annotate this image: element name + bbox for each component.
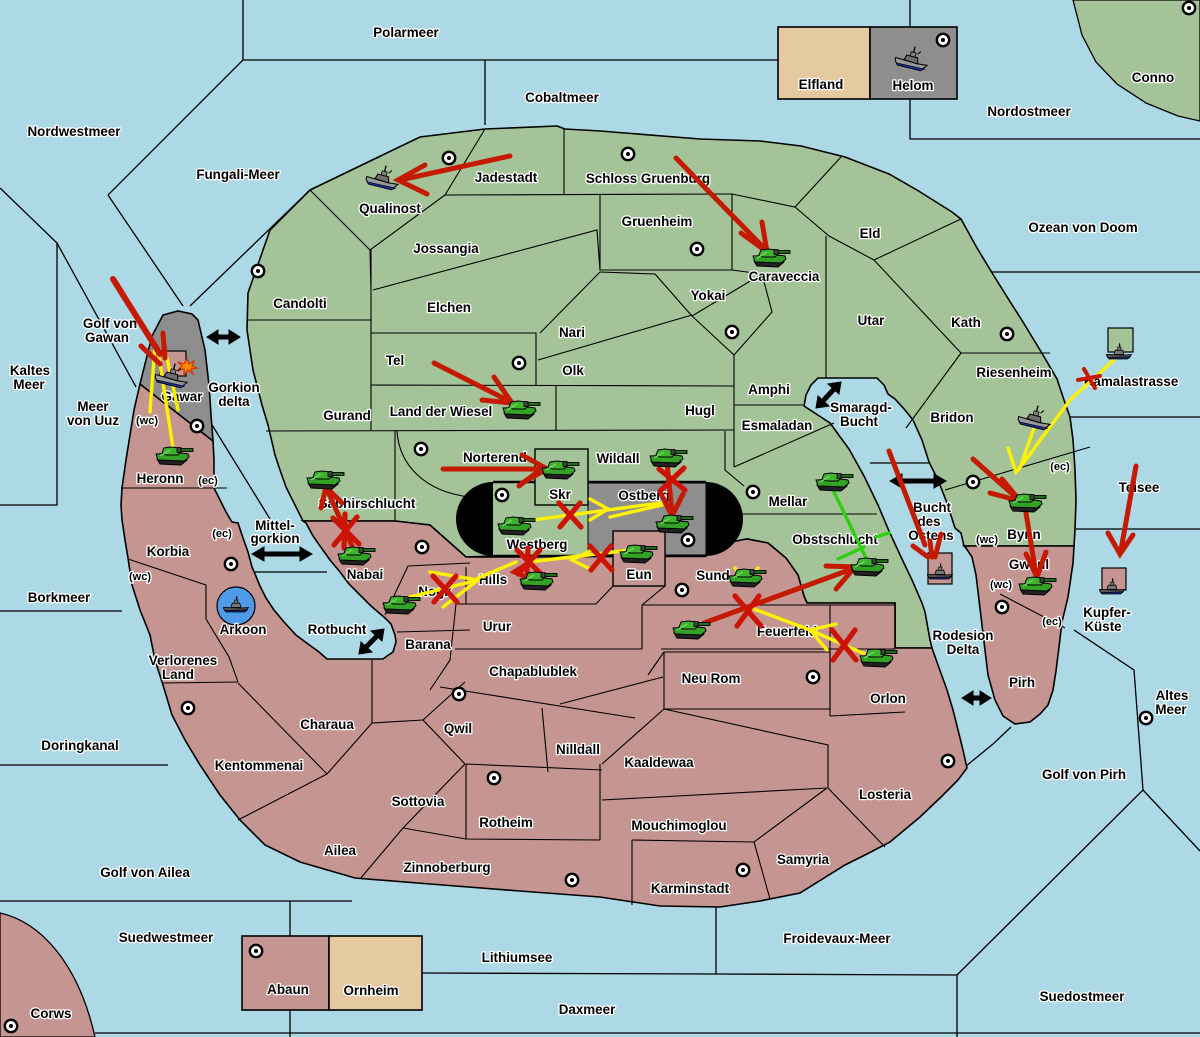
svg-text:Sottovia: Sottovia: [392, 794, 445, 809]
svg-text:Obstschlucht: Obstschlucht: [792, 532, 878, 547]
svg-text:Gorkion: Gorkion: [208, 380, 259, 395]
svg-text:Nilldall: Nilldall: [556, 742, 600, 757]
svg-text:Meer: Meer: [77, 399, 109, 414]
svg-text:Kath: Kath: [951, 315, 981, 330]
svg-text:Suedostmeer: Suedostmeer: [1040, 989, 1126, 1004]
svg-text:delta: delta: [218, 394, 250, 409]
svg-text:Jadestadt: Jadestadt: [475, 170, 538, 185]
svg-text:gorkion: gorkion: [250, 531, 299, 546]
svg-text:Ozean von Doom: Ozean von Doom: [1028, 220, 1137, 235]
svg-text:Land der Wiesel: Land der Wiesel: [390, 404, 493, 419]
svg-text:Amphi: Amphi: [748, 382, 790, 397]
svg-text:Yokai: Yokai: [691, 288, 726, 303]
svg-text:Bucht: Bucht: [840, 414, 878, 429]
svg-text:Heronn: Heronn: [137, 471, 184, 486]
svg-text:Arkoon: Arkoon: [220, 622, 267, 637]
svg-text:Zinnoberburg: Zinnoberburg: [403, 860, 490, 875]
svg-text:Golf von Ailea: Golf von Ailea: [100, 865, 190, 880]
svg-text:Kaltes: Kaltes: [10, 363, 50, 378]
svg-text:Gruenheim: Gruenheim: [622, 214, 693, 229]
svg-text:Mellar: Mellar: [769, 494, 808, 509]
svg-text:Korbia: Korbia: [147, 544, 190, 559]
svg-text:Conno: Conno: [1132, 70, 1174, 85]
svg-text:(ec): (ec): [198, 475, 218, 487]
svg-text:Daxmeer: Daxmeer: [559, 1002, 616, 1017]
svg-text:Olk: Olk: [562, 363, 584, 378]
svg-text:Doringkanal: Doringkanal: [41, 738, 118, 753]
svg-text:Riesenheim: Riesenheim: [976, 365, 1051, 380]
svg-text:Utar: Utar: [858, 313, 886, 328]
svg-text:Polarmeer: Polarmeer: [373, 25, 439, 40]
svg-text:Golf von Pirh: Golf von Pirh: [1042, 767, 1126, 782]
svg-text:Mouchimoglou: Mouchimoglou: [631, 818, 726, 833]
svg-text:Golf von: Golf von: [83, 316, 137, 331]
svg-text:Nari: Nari: [559, 325, 585, 340]
svg-text:Meer: Meer: [1155, 702, 1187, 717]
svg-text:Kentommenai: Kentommenai: [215, 758, 304, 773]
svg-text:Gawan: Gawan: [85, 330, 129, 345]
svg-text:Kupfer-: Kupfer-: [1083, 605, 1131, 620]
svg-text:(wc): (wc): [136, 415, 158, 427]
svg-text:Nordwestmeer: Nordwestmeer: [27, 124, 121, 139]
svg-text:Bridon: Bridon: [930, 410, 973, 425]
svg-text:Urur: Urur: [483, 619, 512, 634]
svg-text:Hugl: Hugl: [685, 403, 715, 418]
svg-text:Abaun: Abaun: [267, 982, 309, 997]
svg-text:Karminstadt: Karminstadt: [651, 881, 730, 896]
svg-text:(ec): (ec): [1050, 461, 1070, 473]
svg-text:Nordostmeer: Nordostmeer: [987, 104, 1071, 119]
svg-text:von Uuz: von Uuz: [67, 413, 119, 428]
svg-text:Meer: Meer: [13, 377, 45, 392]
svg-text:Lithiumsee: Lithiumsee: [482, 950, 553, 965]
svg-text:Eld: Eld: [860, 226, 881, 241]
svg-text:Wildall: Wildall: [596, 451, 639, 466]
svg-text:Suedwestmeer: Suedwestmeer: [119, 930, 214, 945]
svg-text:Kaaldewaa: Kaaldewaa: [624, 755, 694, 770]
svg-text:Elchen: Elchen: [427, 300, 471, 315]
svg-text:Norterend: Norterend: [463, 450, 527, 465]
svg-text:Esmaladan: Esmaladan: [742, 418, 813, 433]
svg-text:Fungali-Meer: Fungali-Meer: [196, 167, 280, 182]
svg-text:Qualinost: Qualinost: [359, 201, 421, 216]
svg-text:Neu Rom: Neu Rom: [682, 671, 741, 686]
svg-text:(wc): (wc): [976, 534, 998, 546]
svg-text:Rotbucht: Rotbucht: [308, 622, 367, 637]
svg-text:Borkmeer: Borkmeer: [28, 590, 91, 605]
svg-text:Land: Land: [162, 667, 194, 682]
svg-text:Caraveccia: Caraveccia: [749, 269, 820, 284]
svg-text:Losteria: Losteria: [859, 787, 912, 802]
svg-text:Eun: Eun: [626, 567, 651, 582]
svg-text:Bynn: Bynn: [1007, 527, 1040, 542]
svg-text:Orlon: Orlon: [870, 691, 906, 706]
svg-text:Helom: Helom: [893, 78, 934, 93]
svg-text:Küste: Küste: [1084, 619, 1121, 634]
svg-text:Pirh: Pirh: [1009, 675, 1035, 690]
svg-text:Samyria: Samyria: [777, 852, 830, 867]
svg-text:Skr: Skr: [549, 487, 571, 502]
svg-text:(ec): (ec): [212, 528, 232, 540]
svg-text:Bucht: Bucht: [913, 500, 951, 515]
svg-text:Jossangia: Jossangia: [413, 241, 479, 256]
svg-text:Cobaltmeer: Cobaltmeer: [525, 90, 599, 105]
svg-text:(ec): (ec): [1042, 616, 1062, 628]
svg-text:Qwil: Qwil: [444, 721, 472, 736]
svg-text:Gawar: Gawar: [162, 389, 204, 404]
svg-text:Corws: Corws: [31, 1006, 72, 1021]
svg-text:Verlorenes: Verlorenes: [149, 653, 217, 668]
svg-text:Rodesion: Rodesion: [932, 628, 993, 643]
svg-text:Rotheim: Rotheim: [479, 815, 533, 830]
svg-text:Ornheim: Ornheim: [343, 983, 398, 998]
svg-text:Barana: Barana: [405, 637, 451, 652]
svg-text:Candolti: Candolti: [273, 296, 327, 311]
svg-text:Chapablublek: Chapablublek: [489, 664, 577, 679]
svg-text:Delta: Delta: [947, 642, 980, 657]
svg-text:Nabai: Nabai: [347, 567, 383, 582]
svg-text:des: des: [917, 514, 940, 529]
svg-text:Tel: Tel: [386, 353, 404, 368]
svg-text:Charaua: Charaua: [300, 717, 354, 732]
svg-text:Froidevaux-Meer: Froidevaux-Meer: [783, 931, 891, 946]
svg-text:(wc): (wc): [129, 571, 151, 583]
svg-text:Smaragd-: Smaragd-: [830, 400, 892, 415]
svg-text:Gurand: Gurand: [323, 408, 371, 423]
svg-text:Elfland: Elfland: [799, 77, 844, 92]
svg-text:Feuerfeld: Feuerfeld: [757, 624, 817, 639]
svg-text:Ailea: Ailea: [324, 843, 357, 858]
svg-text:(wc): (wc): [990, 579, 1012, 591]
svg-text:Teisee: Teisee: [1119, 480, 1160, 495]
svg-text:Sund: Sund: [696, 568, 729, 583]
svg-text:Altes: Altes: [1156, 688, 1189, 703]
